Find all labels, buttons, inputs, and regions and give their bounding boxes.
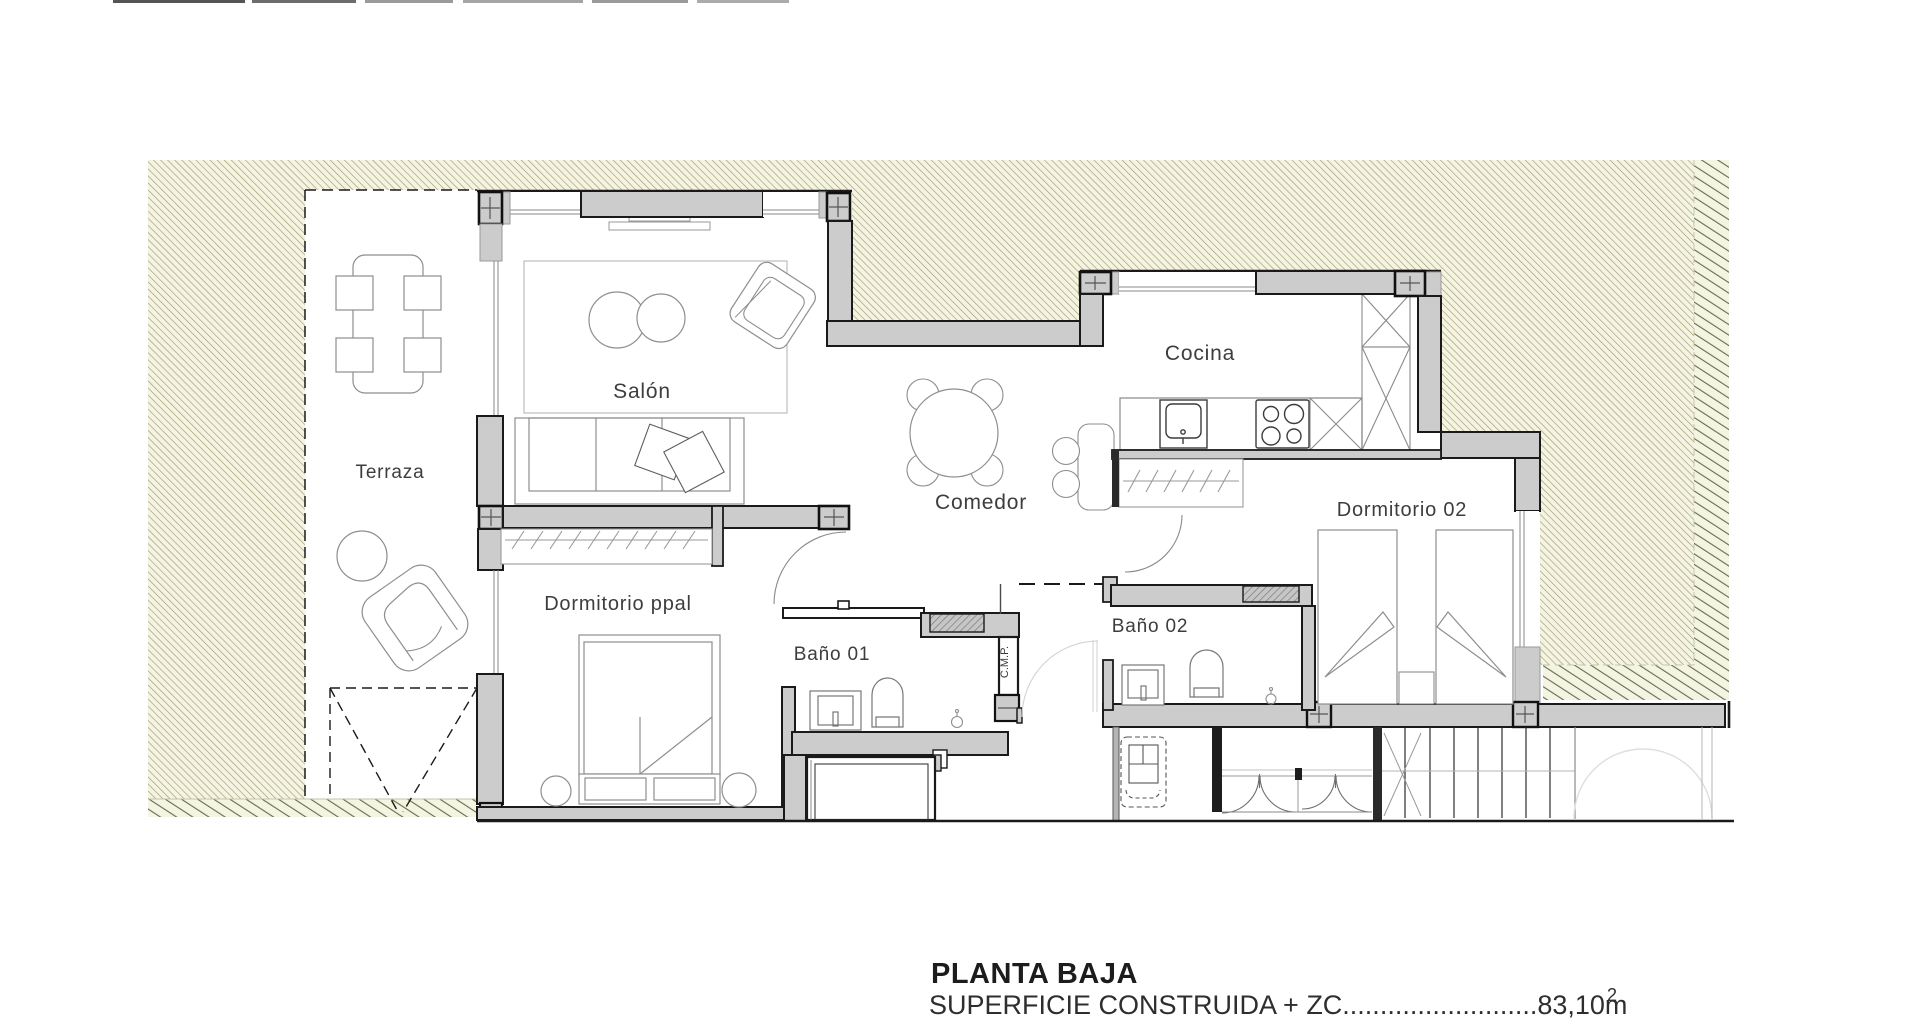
svg-text:C.M.P.: C.M.P. (999, 646, 1011, 678)
svg-text:Dormitorio ppal: Dormitorio ppal (544, 593, 692, 615)
svg-text:Cocina: Cocina (1165, 342, 1235, 365)
svg-text:PLANTA BAJA: PLANTA BAJA (931, 958, 1138, 990)
svg-text:SUPERFICIE UTIL...............: SUPERFICIE UTIL.........................… (929, 1019, 1682, 1024)
svg-text:Baño 01: Baño 01 (794, 644, 870, 665)
svg-text:Dormitorio 02: Dormitorio 02 (1337, 499, 1467, 521)
svg-text:SUPERFICIE CONSTRUIDA + ZC....: SUPERFICIE CONSTRUIDA + ZC..............… (929, 990, 1627, 1020)
svg-text:Comedor: Comedor (935, 491, 1027, 514)
svg-text:Terraza: Terraza (356, 462, 425, 483)
svg-text:2: 2 (1607, 985, 1617, 1005)
svg-text:Baño 02: Baño 02 (1112, 616, 1188, 637)
svg-text:Salón: Salón (613, 380, 671, 403)
